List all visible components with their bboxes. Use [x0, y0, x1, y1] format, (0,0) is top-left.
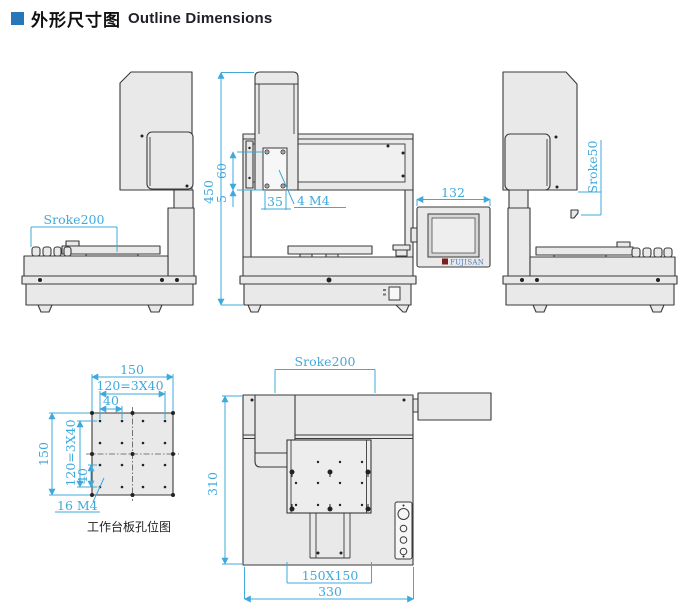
- dim-z-stroke50-label: Sroke50: [585, 140, 600, 193]
- dim-top-stroke200-label: Sroke200: [295, 354, 356, 369]
- top-pendant-box: [418, 393, 491, 420]
- brand-logo-mark: [442, 259, 448, 265]
- dim-top-stroke200: Sroke200: [275, 354, 375, 393]
- right-view-connector-bumps: [632, 248, 672, 257]
- dim-hole-pitch-35: 35: [261, 191, 291, 210]
- callout-16-m4-label: 16 M4: [57, 498, 98, 513]
- dim-plate-pitch-total-label: 120=3X40: [96, 378, 163, 393]
- dim-pendant-width-132: 132: [417, 185, 490, 206]
- outline-dimensions-page: 外形尺寸图 Outline Dimensions: [0, 0, 683, 612]
- left-side-view: Sroke200 450: [22, 72, 254, 312]
- panel-button-3: [400, 548, 407, 555]
- dim-edge-gap-5: 5: [214, 190, 233, 207]
- top-button-panel: [395, 502, 412, 559]
- front-view: 60 5 35 4 M4: [214, 72, 418, 312]
- dim-hole-pitch-35-label: 35: [267, 194, 283, 209]
- panel-button-2: [400, 537, 407, 544]
- brand-logo-text: FUJISAN: [450, 259, 484, 267]
- dim-hole-span-60-label: 60: [214, 163, 229, 179]
- dim-edge-gap-5-label: 5: [214, 195, 229, 203]
- dim-top-depth-310: 310: [205, 396, 243, 564]
- plate-hole-diagram: 150 120=3X40 40 150 120=3X40: [36, 362, 179, 534]
- dim-left-stroke200-label: Sroke200: [44, 212, 105, 227]
- plate-diagram-caption: 工作台板孔位图: [87, 519, 171, 534]
- dim-pendant-width-132-label: 132: [441, 185, 465, 200]
- left-view-connector-bumps: [32, 247, 71, 256]
- right-side-view: Sroke50: [503, 72, 677, 312]
- dim-plate-v-pitch-40-label: 40: [75, 468, 90, 484]
- dim-plate-pitch-40-label: 40: [103, 393, 119, 408]
- dim-plate-height-150-label: 150: [36, 442, 51, 466]
- dispense-tip: [571, 210, 578, 218]
- panel-button-1: [400, 525, 407, 532]
- power-switch: [389, 287, 400, 300]
- dim-table-150x150-label: 150X150: [302, 568, 359, 583]
- dim-top-depth-310-label: 310: [205, 472, 220, 496]
- top-view: Sroke200: [205, 354, 491, 599]
- teach-pendant: 132 FUJISAN: [417, 185, 490, 267]
- top-worktable-plate: [287, 440, 371, 513]
- emergency-stop-button: [398, 509, 409, 520]
- callout-4-m4-label: 4 M4: [297, 193, 330, 208]
- dim-top-width-330-label: 330: [318, 584, 342, 599]
- dim-plate-width-150-label: 150: [120, 362, 144, 377]
- dim-z-stroke50: Sroke50: [578, 140, 601, 215]
- outline-drawing: Sroke200 450: [0, 0, 683, 612]
